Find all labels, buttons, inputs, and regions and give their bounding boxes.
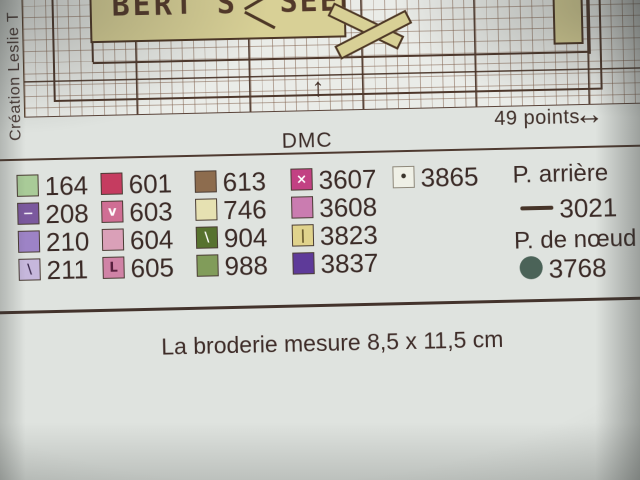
stitch-symbol-icon: v — [108, 205, 117, 218]
color-swatch — [18, 230, 40, 252]
legend-entry: 3608 — [291, 197, 292, 221]
thread-code: 605 — [130, 252, 174, 284]
legend-entry: 988 — [196, 255, 197, 279]
color-swatch — [292, 252, 314, 274]
backstitch-line-icon — [520, 206, 553, 210]
color-swatch: \ — [18, 258, 40, 280]
legend-entry: •3865 — [392, 166, 393, 190]
legend-entry: ×3607 — [290, 169, 291, 193]
backstitch-code: 3021 — [559, 192, 618, 224]
title-banner: BERT'S SEED — [89, 0, 346, 43]
legend-entry: |3823 — [292, 225, 293, 249]
french-knot-dot-icon — [519, 256, 543, 280]
french-knot-label: P. de nœud — [514, 225, 637, 256]
legend-entry: \904 — [196, 227, 197, 251]
designer-credit: Création Leslie T — [4, 0, 25, 141]
width-arrow-icon: ↔ — [574, 98, 605, 133]
stitch-count-label: 49 points — [494, 106, 580, 131]
stitch-symbol-icon: • — [399, 170, 408, 183]
color-swatch: × — [290, 168, 312, 190]
color-swatch: \ — [196, 226, 218, 248]
stitch-symbol-icon: \ — [27, 263, 32, 276]
legend-entry: −208 — [17, 203, 18, 227]
banner-notch-icon — [244, 11, 275, 29]
color-swatch: v — [101, 200, 123, 222]
thread-code: 211 — [46, 254, 88, 286]
stitch-symbol-icon: \ — [204, 231, 209, 244]
color-swatch — [16, 174, 38, 196]
legend-entry: 210 — [18, 231, 19, 255]
french-knot-code: 3768 — [548, 253, 607, 285]
legend-bottom-rule — [0, 296, 640, 313]
design-right-band — [552, 0, 583, 45]
legend-entry: v603 — [101, 201, 102, 225]
banner-text-left: BERT'S — [111, 0, 238, 24]
color-swatch — [100, 172, 122, 194]
backstitch-label: P. arrière — [512, 159, 608, 189]
legend-entry: 3837 — [292, 253, 293, 277]
legend-entry: 164 — [16, 175, 17, 199]
printed-page: BERT'S SEED ↑ Création Leslie T 49 point… — [0, 0, 640, 480]
stitch-symbol-icon: | — [300, 229, 305, 242]
color-swatch: | — [292, 224, 314, 246]
color-swatch — [194, 170, 216, 192]
thread-code: 3837 — [320, 248, 379, 280]
color-swatch — [102, 228, 124, 250]
center-marker-arrow-icon: ↑ — [311, 72, 325, 103]
color-swatch — [195, 198, 217, 220]
thread-code: 3865 — [420, 161, 479, 193]
embroidery-size-text: La broderie mesure 8,5 x 11,5 cm — [2, 322, 640, 364]
stitch-symbol-icon: − — [23, 207, 34, 220]
legend-entry: \211 — [18, 259, 19, 283]
color-swatch — [291, 196, 313, 218]
legend-entry: 604 — [102, 229, 103, 253]
legend-entry: L605 — [102, 257, 103, 281]
pattern-page-photo: BERT'S SEED ↑ Création Leslie T 49 point… — [0, 0, 640, 480]
legend-entry: 601 — [100, 173, 101, 197]
color-swatch: L — [102, 256, 124, 278]
color-swatch: • — [392, 166, 414, 188]
banner-notch-icon — [244, 0, 275, 10]
color-swatch: − — [17, 202, 39, 224]
color-swatch — [196, 254, 218, 276]
stitch-symbol-icon: × — [296, 173, 307, 186]
thread-brand-label: DMC — [281, 129, 332, 154]
legend-entry: 613 — [194, 171, 195, 195]
thread-code: 988 — [224, 250, 268, 282]
legend-entry: 746 — [195, 199, 196, 223]
stitch-symbol-icon: L — [109, 261, 118, 274]
